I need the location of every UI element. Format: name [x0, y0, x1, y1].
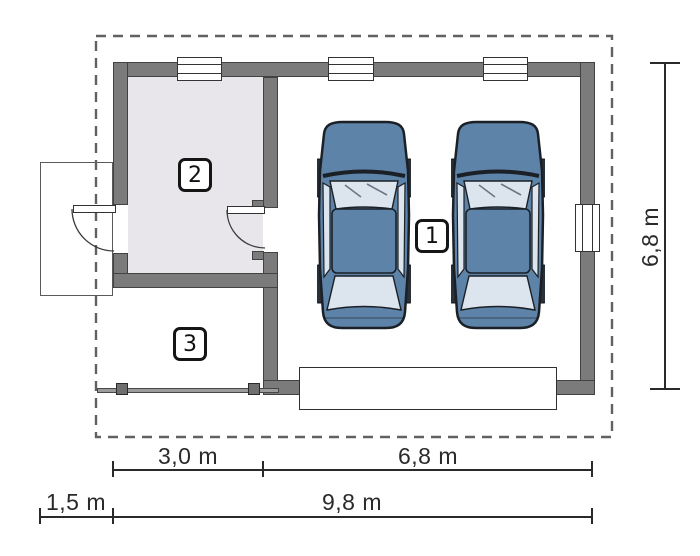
- room-label-1: 1: [415, 219, 449, 253]
- wall-partition-upper: [263, 77, 278, 208]
- room-number: 3: [183, 332, 197, 357]
- car-1-top-view-icon: [317, 119, 411, 331]
- dimension-label-segment-1: 3,0 m: [128, 444, 248, 469]
- dimension-line-right: [664, 63, 666, 390]
- room-label-3: 3: [173, 327, 207, 361]
- door-left-leaf: [73, 205, 116, 213]
- window-top-1: [177, 57, 222, 81]
- dimension-label-segment-2: 6,8 m: [368, 444, 488, 469]
- room-number: 1: [425, 224, 439, 249]
- window-glass: [177, 64, 222, 74]
- dimension-label-right: 6,8 m: [638, 191, 662, 283]
- dimension-tick: [112, 461, 114, 477]
- fence-post-1: [116, 383, 128, 395]
- porch-outline: [40, 162, 113, 296]
- dimension-tick: [591, 508, 593, 524]
- dimension-line-segments: [113, 469, 593, 471]
- window-top-2: [328, 57, 374, 81]
- wall-room2-bottom: [113, 273, 278, 288]
- door-jamb-stub: [252, 251, 264, 260]
- dimension-label-overall-2: 9,8 m: [292, 490, 412, 515]
- car-2-top-view-icon: [451, 119, 545, 331]
- garage-door: [299, 367, 557, 410]
- room-number: 2: [188, 163, 202, 188]
- floor-plan: 1 2 3 6,8 m 3,0 m 6,8 m 1,5 m 9,8 m: [0, 0, 700, 556]
- dimension-tick: [262, 461, 264, 477]
- window-glass: [328, 64, 374, 74]
- dimension-line-overall: [40, 516, 593, 518]
- wall-left-upper: [113, 62, 128, 205]
- window-top-3: [483, 57, 528, 81]
- window-glass: [582, 204, 593, 252]
- fence-post-2: [248, 383, 260, 395]
- dimension-tick: [591, 461, 593, 477]
- door-partition-leaf: [227, 206, 265, 214]
- dimension-tick: [650, 62, 680, 64]
- dimension-tick: [650, 388, 680, 390]
- dimension-label-overall-1: 1,5 m: [16, 490, 136, 515]
- window-glass: [483, 64, 528, 74]
- room-label-2: 2: [178, 158, 212, 192]
- window-right: [575, 204, 600, 252]
